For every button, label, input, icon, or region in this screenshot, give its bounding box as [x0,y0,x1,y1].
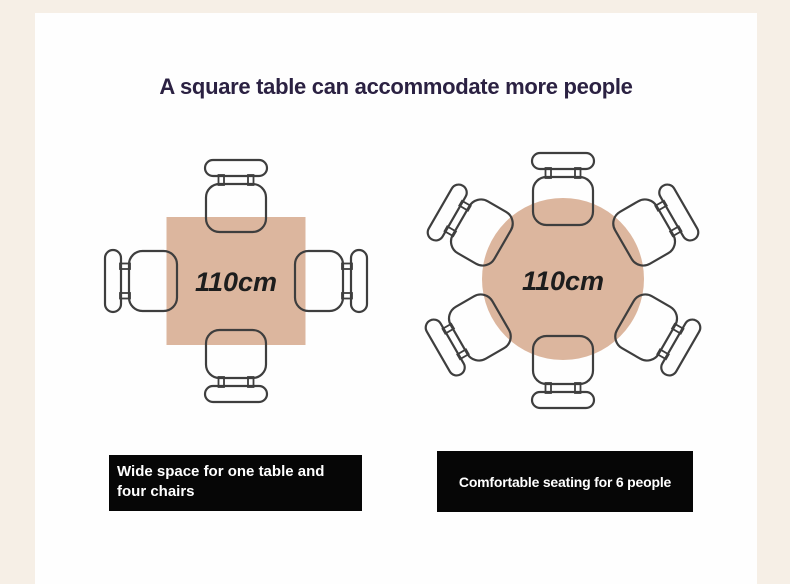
caption-round-table: Comfortable seating for 6 people [437,451,693,512]
square-table-diagram: 110cm [96,150,376,410]
round-table-size-label: 110cm [522,266,604,296]
infographic-page: A square table can accommodate more peop… [0,0,790,584]
caption-line: Comfortable seating for 6 people [459,474,671,490]
caption-square-table: Wide space for one table and four chairs [109,455,362,511]
chair-icon-left [105,250,177,312]
square-table-size-label: 110cm [195,267,277,297]
caption-line: Wide space for one table and [117,462,354,482]
caption-line: four chairs [117,482,354,502]
page-title: A square table can accommodate more peop… [35,74,757,100]
round-table-diagram: 110cm [423,142,703,422]
chair-icon-right [295,250,367,312]
